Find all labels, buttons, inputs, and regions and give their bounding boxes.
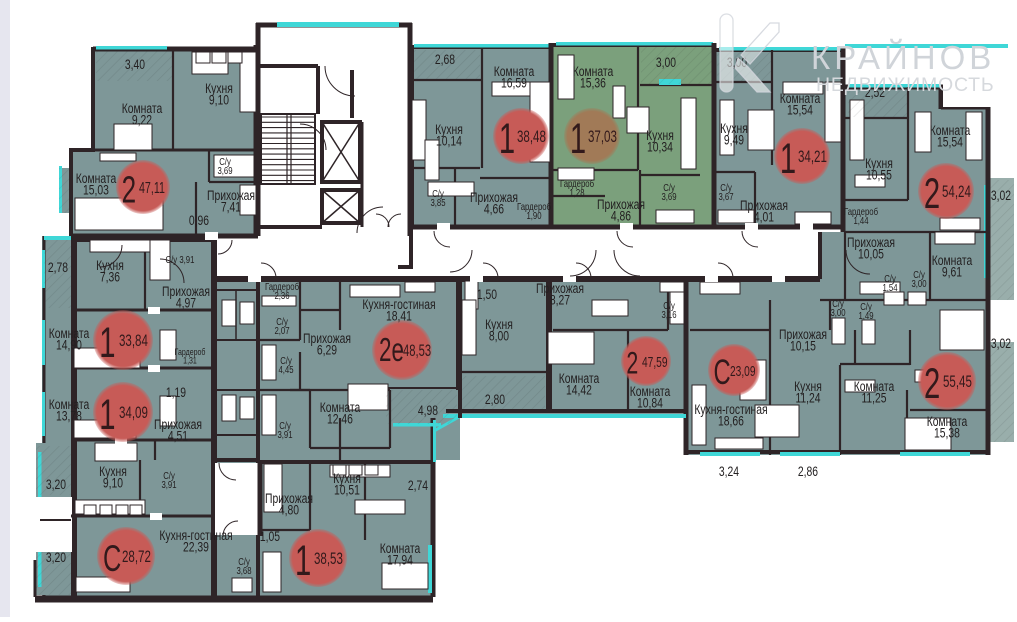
svg-text:0,96: 0,96	[189, 212, 209, 228]
svg-text:1,90: 1,90	[526, 210, 541, 221]
svg-text:37,03: 37,03	[588, 128, 617, 147]
svg-text:3,16: 3,16	[661, 309, 676, 320]
svg-text:9,22: 9,22	[132, 112, 152, 128]
svg-text:9,61: 9,61	[942, 264, 962, 280]
svg-text:8,27: 8,27	[550, 292, 570, 308]
svg-text:2,68: 2,68	[435, 51, 455, 67]
svg-text:2: 2	[122, 167, 137, 210]
svg-text:15,54: 15,54	[787, 102, 813, 118]
svg-text:38,48: 38,48	[517, 128, 546, 147]
svg-text:2,80: 2,80	[485, 391, 505, 407]
svg-text:2,78: 2,78	[48, 259, 68, 275]
svg-text:1: 1	[499, 115, 515, 163]
svg-text:33,84: 33,84	[119, 332, 148, 351]
svg-text:3,20: 3,20	[46, 476, 66, 492]
svg-text:1,19: 1,19	[166, 384, 186, 400]
svg-text:С/у 3,91: С/у 3,91	[166, 254, 195, 265]
svg-text:10,84: 10,84	[637, 395, 663, 411]
svg-text:2,07: 2,07	[274, 325, 289, 336]
svg-text:11,25: 11,25	[861, 390, 886, 406]
svg-text:47,59: 47,59	[642, 353, 668, 371]
svg-text:8,00: 8,00	[489, 328, 509, 344]
svg-text:9,10: 9,10	[103, 475, 123, 491]
svg-text:10,51: 10,51	[334, 482, 360, 498]
svg-text:1,44: 1,44	[853, 215, 868, 226]
svg-text:38,53: 38,53	[314, 550, 343, 569]
svg-text:48,53: 48,53	[403, 341, 431, 360]
svg-text:9,49: 9,49	[724, 132, 744, 148]
svg-text:15,36: 15,36	[580, 75, 606, 91]
svg-text:23,09: 23,09	[730, 362, 756, 380]
svg-text:2,36: 2,36	[274, 290, 289, 301]
svg-text:2: 2	[924, 360, 940, 408]
svg-text:15,03: 15,03	[83, 182, 109, 198]
svg-text:4,86: 4,86	[611, 208, 631, 224]
svg-text:3,40: 3,40	[125, 56, 145, 72]
svg-text:4,66: 4,66	[484, 201, 504, 217]
svg-text:НЕДВИЖИМОСТЬ: НЕДВИЖИМОСТЬ	[816, 74, 995, 96]
svg-text:4,45: 4,45	[278, 364, 293, 375]
svg-text:10,15: 10,15	[790, 338, 816, 354]
svg-text:10,34: 10,34	[647, 139, 673, 155]
svg-text:10,14: 10,14	[436, 133, 462, 149]
svg-text:1,54: 1,54	[882, 282, 897, 293]
svg-text:3,00: 3,00	[830, 307, 845, 318]
svg-text:1,28: 1,28	[569, 187, 584, 198]
svg-text:С: С	[714, 354, 731, 393]
svg-text:7,41: 7,41	[221, 199, 241, 215]
svg-text:2,74: 2,74	[408, 477, 428, 493]
svg-text:3,02: 3,02	[991, 187, 1011, 203]
svg-text:3,67: 3,67	[718, 191, 733, 202]
svg-text:4,80: 4,80	[279, 502, 299, 518]
svg-text:4,98: 4,98	[418, 402, 438, 418]
svg-text:1,49: 1,49	[858, 310, 873, 321]
svg-text:3,00: 3,00	[656, 54, 676, 70]
svg-text:2е: 2е	[379, 331, 404, 368]
svg-text:1: 1	[570, 115, 586, 163]
svg-text:4,97: 4,97	[176, 295, 196, 311]
svg-text:15,54: 15,54	[937, 134, 963, 150]
svg-text:4,51: 4,51	[168, 428, 188, 444]
svg-text:54,24: 54,24	[942, 183, 971, 202]
svg-text:3,69: 3,69	[217, 165, 232, 176]
svg-text:47,11: 47,11	[139, 179, 165, 197]
svg-text:10,05: 10,05	[858, 246, 884, 262]
svg-text:6,29: 6,29	[317, 342, 337, 358]
svg-text:18,41: 18,41	[386, 308, 412, 324]
svg-text:3,69: 3,69	[661, 191, 676, 202]
svg-text:34,09: 34,09	[119, 404, 148, 423]
svg-text:3,91: 3,91	[161, 479, 176, 490]
svg-text:2,86: 2,86	[798, 463, 818, 479]
svg-text:3,91: 3,91	[277, 429, 292, 440]
svg-text:3,20: 3,20	[46, 549, 66, 565]
svg-text:С: С	[103, 537, 121, 579]
svg-text:16,59: 16,59	[501, 75, 527, 91]
svg-text:9,10: 9,10	[209, 92, 229, 108]
svg-text:17,94: 17,94	[387, 552, 413, 568]
svg-text:КРАЙНОВ: КРАЙНОВ	[811, 39, 995, 76]
svg-text:14,90: 14,90	[56, 337, 82, 353]
svg-text:1: 1	[99, 319, 115, 367]
svg-text:15,38: 15,38	[934, 425, 960, 441]
svg-text:10,55: 10,55	[866, 167, 892, 183]
svg-text:34,21: 34,21	[798, 148, 827, 167]
svg-text:14,42: 14,42	[566, 382, 592, 398]
svg-text:4,01: 4,01	[754, 209, 774, 225]
svg-text:1: 1	[780, 135, 796, 183]
svg-text:3,00: 3,00	[911, 278, 926, 289]
svg-text:2: 2	[924, 170, 940, 218]
svg-text:3,68: 3,68	[236, 565, 251, 576]
svg-text:1,05: 1,05	[260, 528, 280, 544]
svg-text:1: 1	[295, 537, 311, 585]
svg-text:28,72: 28,72	[122, 548, 151, 567]
svg-text:55,45: 55,45	[943, 373, 972, 392]
svg-text:13,78: 13,78	[56, 408, 82, 424]
svg-text:2: 2	[626, 345, 638, 380]
svg-text:12,46: 12,46	[327, 411, 353, 427]
svg-text:1,50: 1,50	[477, 286, 497, 302]
svg-text:11,24: 11,24	[795, 390, 820, 406]
svg-text:3,02: 3,02	[991, 335, 1011, 351]
svg-text:18,66: 18,66	[718, 413, 744, 429]
svg-text:7,36: 7,36	[100, 269, 120, 285]
svg-text:22,39: 22,39	[183, 539, 209, 555]
svg-text:3,24: 3,24	[719, 463, 739, 479]
svg-text:1: 1	[99, 391, 115, 439]
svg-text:1,31: 1,31	[183, 354, 197, 365]
svg-text:3,85: 3,85	[430, 197, 445, 208]
